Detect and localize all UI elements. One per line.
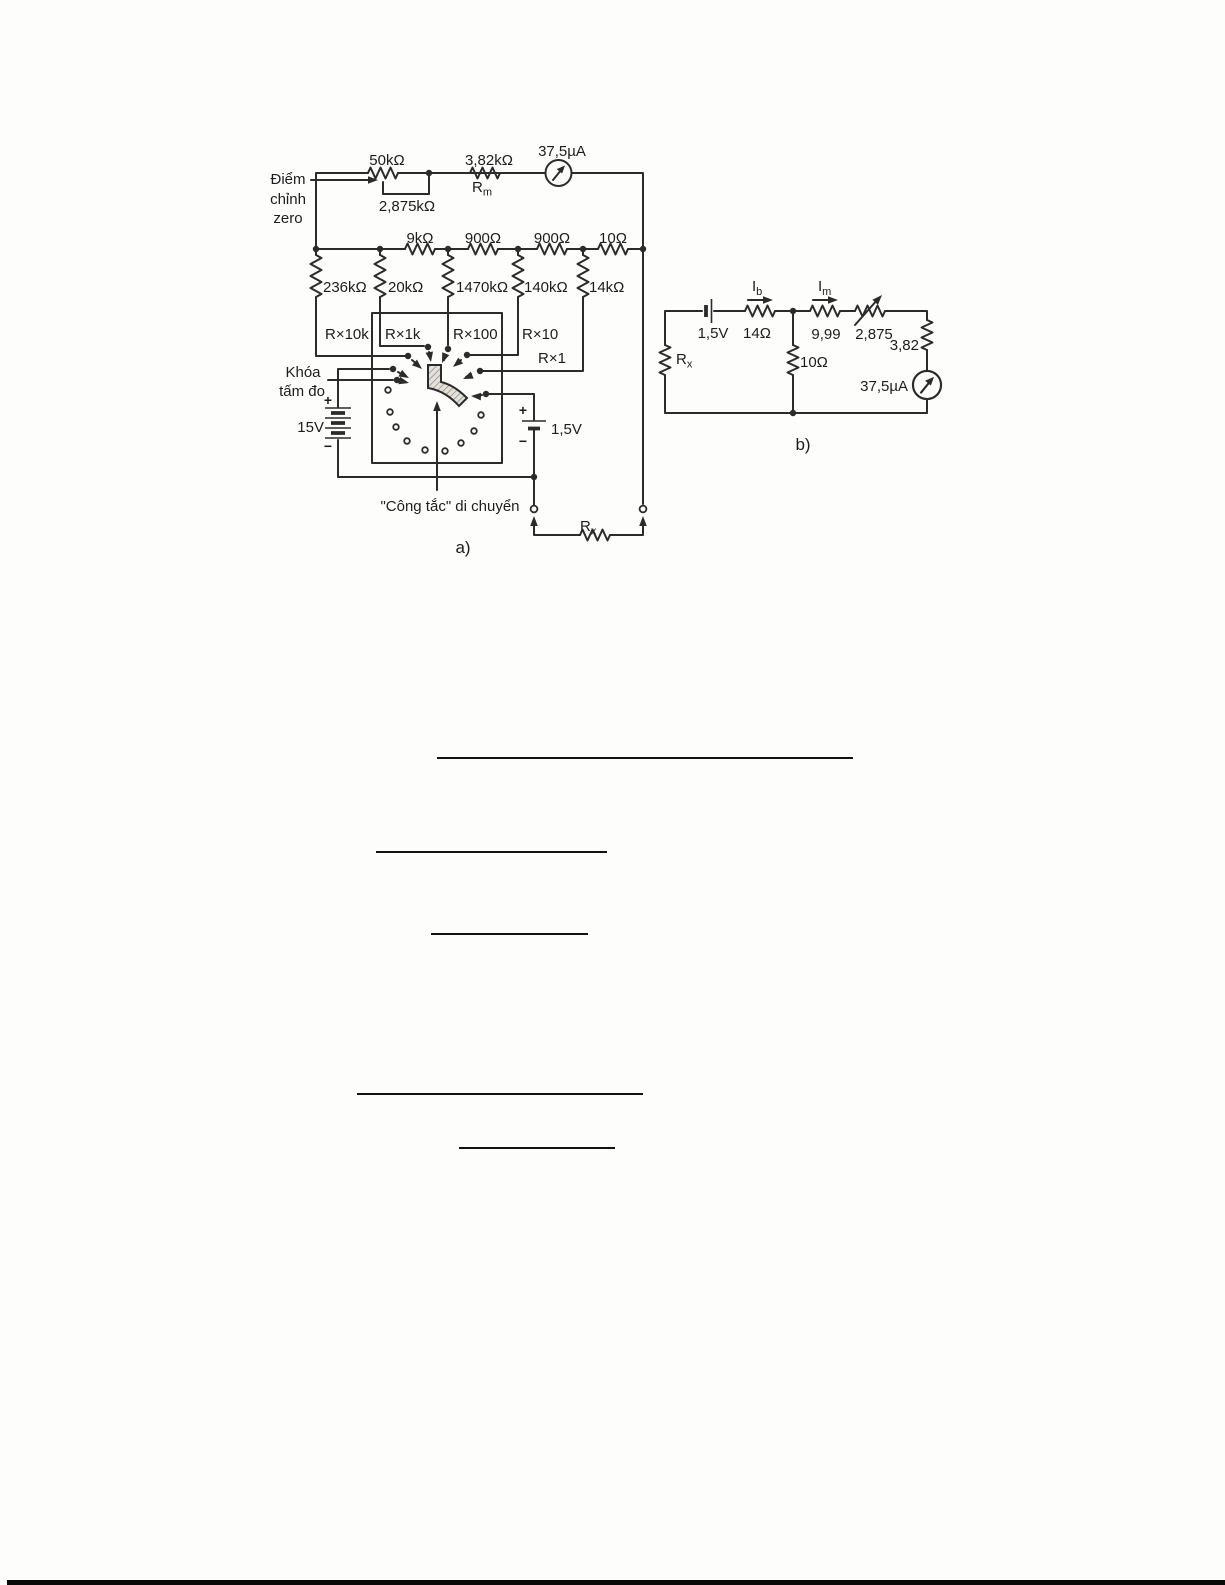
lock-label-2: tấm đo — [279, 383, 325, 400]
battery-15v — [325, 408, 351, 438]
series-r1: 9kΩ — [406, 230, 433, 247]
r2875-label: 2,875 — [855, 326, 893, 343]
ib-label: Ib — [752, 278, 762, 298]
meter-value: 37,5µA — [538, 143, 586, 160]
battery-15v-label: 15V — [297, 419, 324, 436]
battery-1v5-label: 1,5V — [551, 421, 582, 438]
test-terminals[interactable] — [531, 506, 647, 513]
rx-label-b: Rx — [676, 351, 693, 371]
resistor-rx-b — [660, 345, 671, 375]
series-r3: 900Ω — [534, 230, 570, 247]
meter-b-label: 37,5µA — [860, 378, 908, 395]
pot-50k-resistor — [368, 168, 398, 179]
zero-adjust-label-1: Điểm — [270, 171, 305, 188]
battery-1v5-plus: + — [519, 402, 527, 418]
series-r4: 10Ω — [599, 230, 627, 247]
range-x1k: R×1k — [385, 326, 421, 343]
shunt-r3: 1470kΩ — [456, 279, 508, 296]
shunt-r1: 236kΩ — [323, 279, 367, 296]
rm-label: Rm — [472, 179, 492, 199]
battery-15v-minus: − — [324, 438, 332, 454]
moving-switch-label: "Công tắc" di chuyển — [380, 498, 519, 515]
zero-adjust-label-3: zero — [273, 210, 302, 227]
rule-2 — [376, 851, 607, 853]
rotary-switch-wedge[interactable] — [428, 365, 467, 406]
battery-b-label: 1,5V — [698, 325, 729, 342]
im-label: Im — [818, 278, 831, 298]
lock-label-1: Khóa — [285, 364, 321, 381]
junction-dots — [313, 170, 646, 480]
shunt-r4: 140kΩ — [524, 279, 568, 296]
rm-resistor — [470, 168, 500, 179]
r999-label: 9,99 — [811, 326, 840, 343]
battery-b — [706, 299, 712, 323]
rx-label-a: Rx — [580, 518, 597, 538]
resistor-999 — [810, 306, 840, 317]
battery-1v5 — [522, 421, 546, 429]
battery-15v-plus: + — [324, 392, 332, 408]
r10-label: 10Ω — [800, 354, 828, 371]
shunt-r2: 20kΩ — [388, 279, 423, 296]
range-x10k: R×10k — [325, 326, 369, 343]
range-x100: R×100 — [453, 326, 498, 343]
r382-label: 3,82 — [890, 337, 919, 354]
scanned-document-page: Điểm chỉnh zero 50kΩ 2,875kΩ 3,82kΩ Rm 3… — [0, 0, 1225, 1585]
series-r2: 900Ω — [465, 230, 501, 247]
circuit-a-wires — [311, 173, 643, 535]
caption-b: b) — [795, 435, 810, 454]
pot-value: 50kΩ — [369, 152, 404, 169]
rule-5 — [459, 1147, 615, 1149]
microammeter-b — [913, 371, 941, 399]
caption-a: a) — [455, 538, 470, 557]
range-x10: R×10 — [522, 326, 558, 343]
r14-label: 14Ω — [743, 325, 771, 342]
rm-value: 3,82kΩ — [465, 152, 513, 169]
rule-1 — [437, 757, 853, 759]
zero-adjust-label-2: chỉnh — [270, 191, 306, 208]
circuit-a: Điểm chỉnh zero 50kΩ 2,875kΩ 3,82kΩ Rm 3… — [270, 143, 647, 557]
rule-4 — [357, 1093, 643, 1095]
page-bottom-scan-bar — [7, 1580, 1225, 1585]
shunt-r5: 14kΩ — [589, 279, 624, 296]
battery-1v5-minus: − — [519, 433, 527, 449]
unused-switch-contacts — [385, 387, 484, 454]
microammeter — [546, 160, 572, 186]
pot-shunt-value: 2,875kΩ — [379, 198, 435, 215]
circuit-b: Ib Im 1,5V 14Ω 9,99 2,875 3,82 10Ω 37,5µ… — [660, 278, 942, 454]
ohmmeter-figure: Điểm chỉnh zero 50kΩ 2,875kΩ 3,82kΩ Rm 3… — [0, 0, 1225, 1585]
resistor-382 — [922, 320, 933, 350]
range-x1: R×1 — [538, 350, 566, 367]
rule-3 — [431, 933, 588, 935]
resistor-10 — [788, 345, 799, 375]
resistor-14 — [745, 306, 775, 317]
shaft-arrow — [433, 401, 441, 411]
